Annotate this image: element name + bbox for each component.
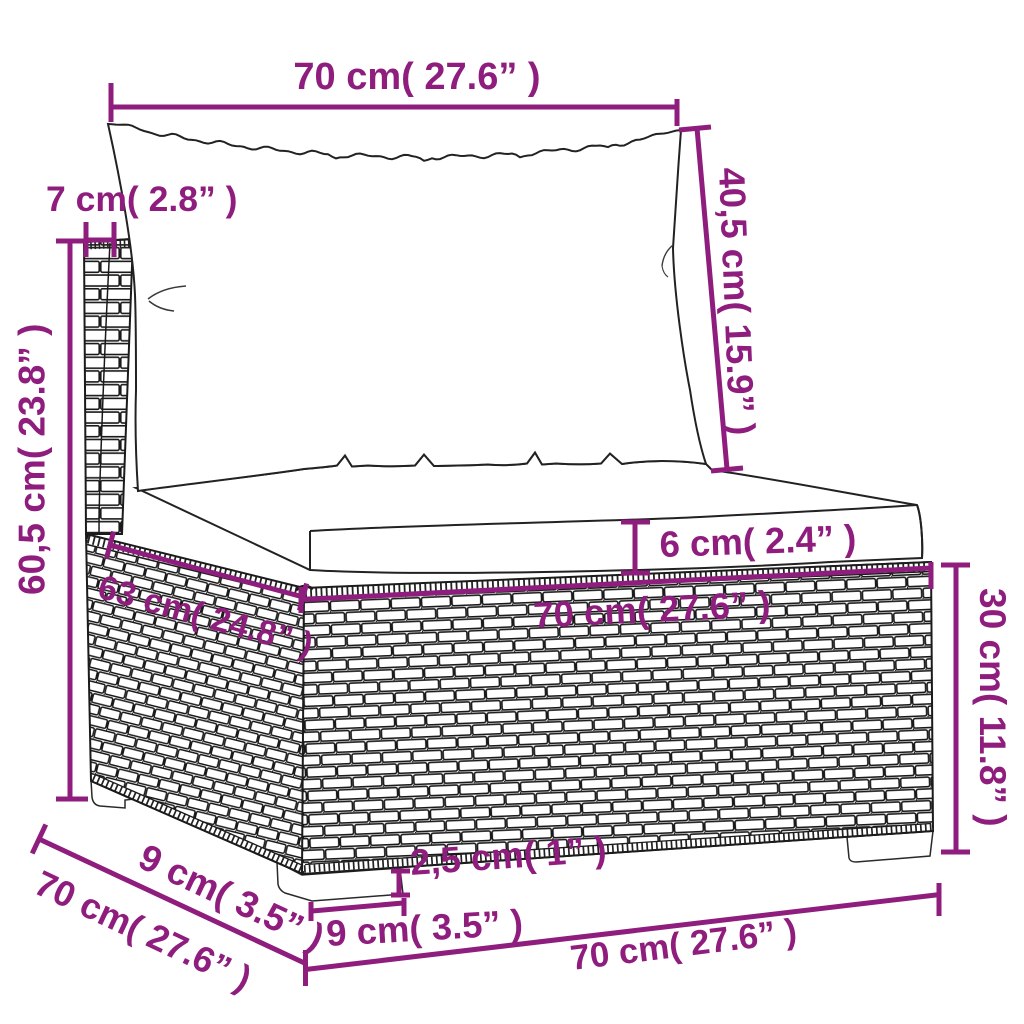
svg-text:30 cm( 11.8” ): 30 cm( 11.8” ) — [972, 588, 1013, 827]
svg-text:70 cm( 27.6” ): 70 cm( 27.6” ) — [293, 56, 540, 98]
svg-text:7 cm( 2.8” ): 7 cm( 2.8” ) — [46, 179, 237, 219]
svg-text:6 cm( 2.4” ): 6 cm( 2.4” ) — [659, 517, 857, 565]
svg-text:60,5 cm( 23.8” ): 60,5 cm( 23.8” ) — [12, 324, 53, 595]
